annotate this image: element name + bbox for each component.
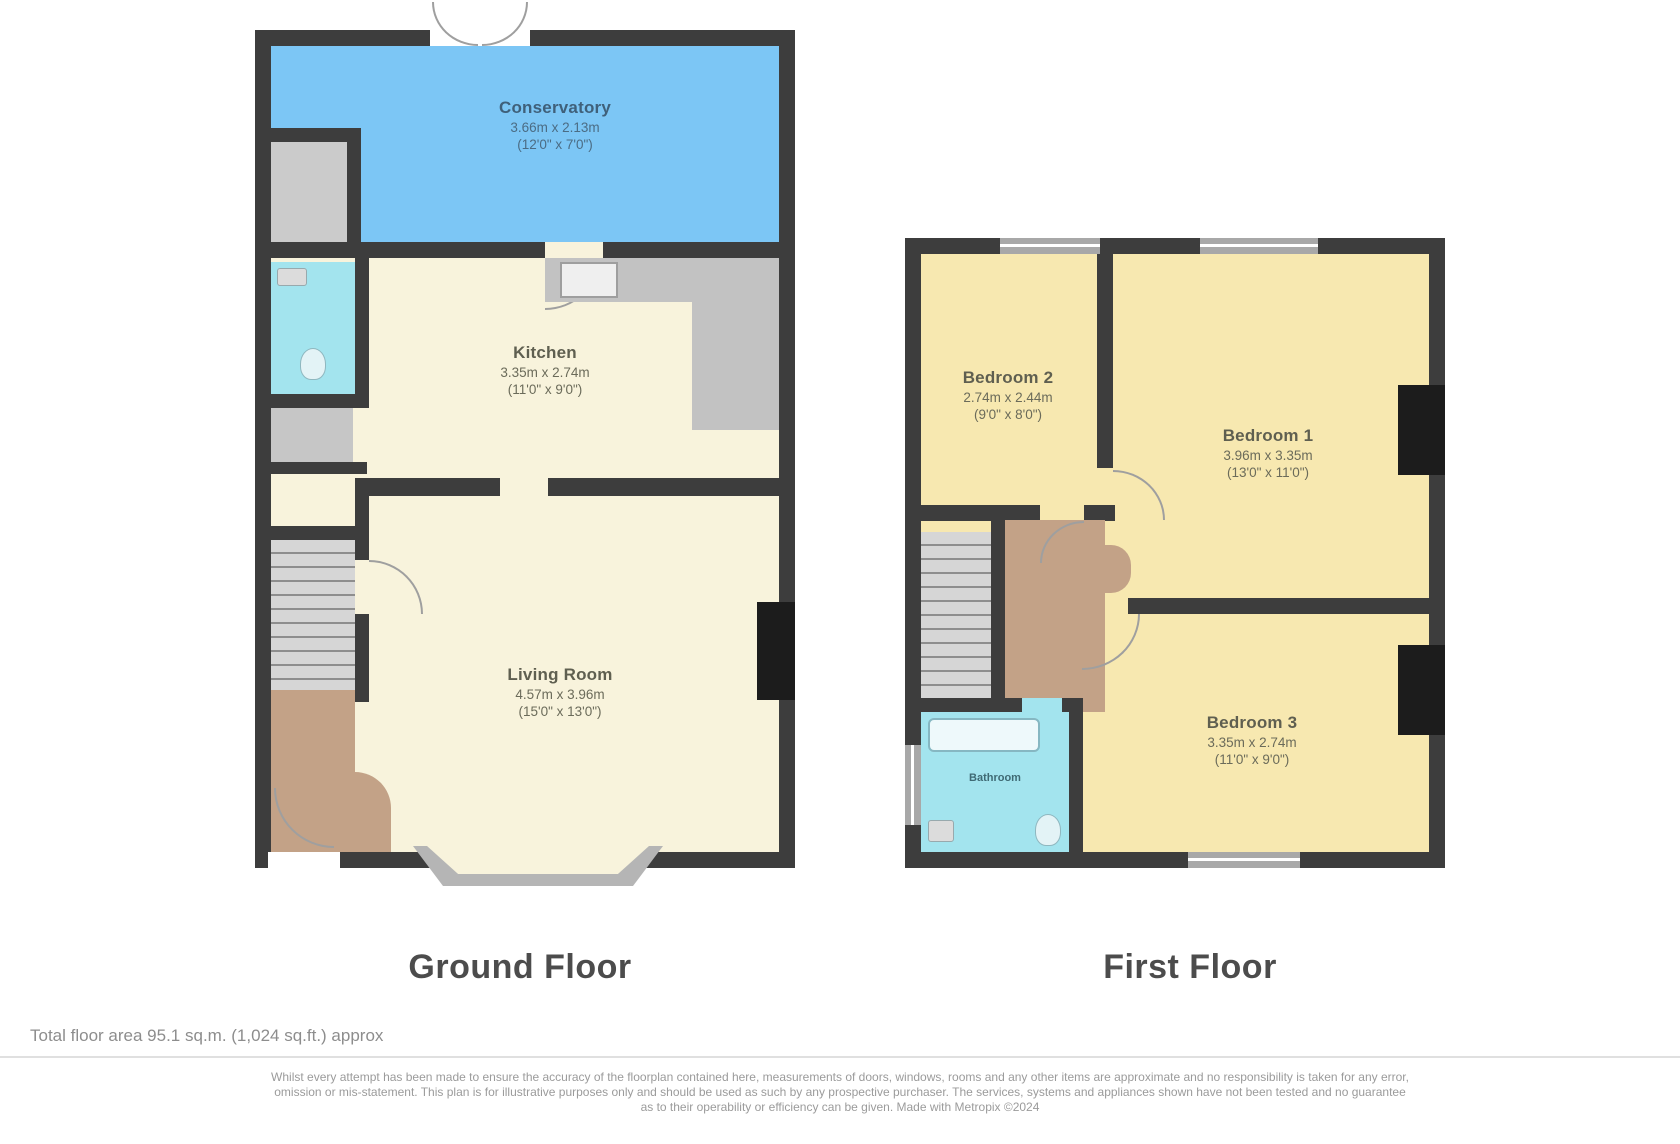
living-room-opening: [500, 478, 548, 496]
room-name: Living Room: [460, 665, 660, 685]
store-room: [271, 142, 347, 242]
room-dim-imperial: (12'0" x 7'0"): [430, 137, 680, 152]
room-dim-imperial: (11'0" x 9'0"): [445, 382, 645, 397]
first-floor-caption: First Floor: [1025, 948, 1355, 987]
bathroom-door-opening: [1022, 698, 1062, 712]
room-dim-metric: 3.96m x 3.35m: [1168, 448, 1368, 463]
disclaimer: Whilst every attempt has been made to en…: [0, 1070, 1680, 1115]
window-line: [1000, 244, 1100, 247]
bedroom2-label: Bedroom 2 2.74m x 2.44m (9'0" x 8'0"): [918, 368, 1098, 422]
room-dim-imperial: (15'0" x 13'0"): [460, 704, 660, 719]
hall-door-opening: [355, 560, 369, 614]
bathroom-label: Bathroom: [940, 772, 1050, 784]
window: [757, 602, 795, 700]
staircase: [921, 532, 991, 708]
room-dim-imperial: (9'0" x 8'0"): [918, 407, 1098, 422]
toilet-fixture: [300, 348, 326, 380]
room-dim-metric: 2.74m x 2.44m: [918, 390, 1098, 405]
bedroom1-label: Bedroom 1 3.96m x 3.35m (13'0" x 11'0"): [1168, 426, 1368, 480]
window-line: [1188, 858, 1300, 861]
window: [1398, 645, 1445, 735]
room-dim-metric: 4.57m x 3.96m: [460, 687, 660, 702]
wall: [355, 258, 369, 406]
window-line: [1200, 244, 1318, 247]
wall: [347, 128, 361, 242]
sink-fixture: [277, 268, 307, 286]
wall: [255, 128, 361, 142]
toilet-fixture: [1035, 814, 1061, 846]
room-name: Conservatory: [430, 98, 680, 118]
kitchen-worktop: [692, 302, 779, 430]
room-name: Bedroom 2: [918, 368, 1098, 388]
room-dim-imperial: (11'0" x 9'0"): [1152, 752, 1352, 767]
front-door-opening: [268, 852, 340, 868]
room-name: Kitchen: [445, 343, 645, 363]
disclaimer-line: as to their operability or efficiency ca…: [0, 1100, 1680, 1115]
wall: [255, 394, 369, 408]
wall: [255, 462, 367, 474]
kitchen-appliance: [560, 262, 618, 298]
wall: [255, 526, 355, 540]
wall: [1069, 698, 1083, 852]
divider: [0, 1056, 1680, 1058]
room-dim-metric: 3.66m x 2.13m: [430, 120, 680, 135]
kitchen-door-opening: [545, 242, 603, 258]
kitchen-label: Kitchen 3.35m x 2.74m (11'0" x 9'0"): [445, 343, 645, 397]
bedroom3-label: Bedroom 3 3.35m x 2.74m (11'0" x 9'0"): [1152, 713, 1352, 767]
disclaimer-line: omission or mis-statement. This plan is …: [0, 1085, 1680, 1100]
room-name: Bedroom 1: [1168, 426, 1368, 446]
staircase: [271, 540, 355, 690]
bedroom2-door-opening: [1040, 505, 1084, 521]
floorplan-canvas: Conservatory 3.66m x 2.13m (12'0" x 7'0"…: [0, 0, 1680, 1144]
room-dim-metric: 3.35m x 2.74m: [1152, 735, 1352, 750]
room-dim-imperial: (13'0" x 11'0"): [1168, 465, 1368, 480]
room-dim-metric: 3.35m x 2.74m: [445, 365, 645, 380]
window: [1398, 385, 1445, 475]
living-room-label: Living Room 4.57m x 3.96m (15'0" x 13'0"…: [460, 665, 660, 719]
room-name: Bedroom 3: [1152, 713, 1352, 733]
sink-fixture: [928, 820, 954, 842]
window-line: [911, 745, 914, 825]
ground-floor-caption: Ground Floor: [320, 948, 720, 987]
disclaimer-line: Whilst every attempt has been made to en…: [0, 1070, 1680, 1085]
bay-window-inner: [427, 846, 649, 874]
side-corridor: [271, 408, 353, 462]
wall: [991, 518, 1005, 708]
conservatory-label: Conservatory 3.66m x 2.13m (12'0" x 7'0"…: [430, 98, 680, 152]
wall: [355, 478, 779, 496]
wall: [255, 242, 795, 258]
bathtub-fixture: [928, 718, 1040, 752]
total-floor-area: Total floor area 95.1 sq.m. (1,024 sq.ft…: [30, 1026, 383, 1046]
